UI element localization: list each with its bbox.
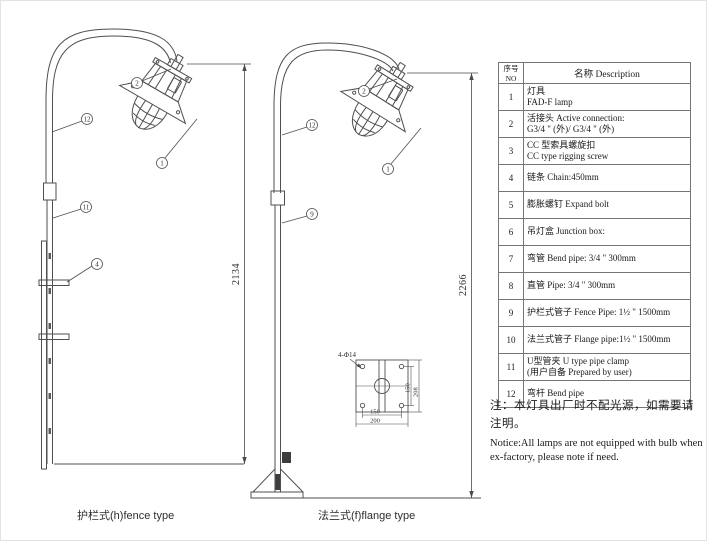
part-number: 5 [499, 192, 524, 219]
callout-bend-pipe: 12 [309, 122, 317, 130]
drawing-sheet: 2 12 1 11 4 2134 [0, 0, 707, 541]
fence-type-caption: 护栏式(h)fence type [77, 507, 174, 523]
flange-type-drawing [251, 43, 481, 498]
table-row: 10 法兰式管子 Flange pipe:1½ " 1500mm [499, 327, 691, 354]
part-desc-line2: CC type rigging screw [527, 151, 687, 162]
table-row: 1 灯具FAD-F lamp [499, 84, 691, 111]
part-desc-line2: G3/4 " (外)/ G3/4 " (外) [527, 124, 687, 135]
part-desc-line1: U型管夹 U type pipe clamp [527, 356, 687, 367]
callout-chain: 4 [95, 261, 99, 269]
part-desc-line1: 灯具 [527, 86, 687, 97]
note-english: Notice:All lamps are not equipped with b… [490, 437, 705, 466]
table-row: 6 吊灯盒 Junction box: [499, 219, 691, 246]
part-number: 1 [499, 84, 524, 111]
callout-bend-pipe: 12 [84, 116, 92, 124]
callout-lamp: 1 [386, 166, 390, 174]
callout-active-connection: 2 [135, 80, 139, 88]
flange-type-caption: 法兰式(f)flange type [318, 507, 415, 523]
hole-callout-label: 4-Φ14 [338, 351, 356, 359]
callout-u-clamp: 11 [83, 204, 90, 212]
part-number: 10 [499, 327, 524, 354]
flange-callouts: 2 12 1 9 [282, 79, 421, 223]
callout-pipe: 9 [310, 211, 314, 219]
notes-block: 注：本灯具出厂时不配光源，如需要请注明。 Notice:All lamps ar… [490, 398, 705, 466]
fence-type-drawing [39, 29, 244, 469]
parts-table: 序号NO 名称 Description 1 灯具FAD-F lamp 2 活接头… [498, 62, 691, 408]
part-desc-line2: FAD-F lamp [527, 97, 687, 108]
part-desc-line1: 吊灯盒 Junction box: [527, 226, 687, 237]
dimension-2266-label: 2266 [458, 274, 469, 296]
part-desc-line1: 直管 Pipe: 3/4 " 300mm [527, 280, 687, 291]
table-row: 3 CC 型索具螺旋扣CC type rigging screw [499, 138, 691, 165]
plate-width-label: 200 [370, 418, 380, 425]
part-number: 6 [499, 219, 524, 246]
flange-base-detail: 4-Φ14 150 208 150 200 [338, 351, 422, 427]
table-row: 5 膨胀螺钉 Expand bolt [499, 192, 691, 219]
bolt-hole [399, 364, 403, 368]
table-header-row: 序号NO 名称 Description [499, 63, 691, 84]
table-row: 2 活接头 Active connection:G3/4 " (外)/ G3/4… [499, 111, 691, 138]
part-desc-line1: 膨胀螺钉 Expand bolt [527, 199, 687, 210]
lamp-icon [106, 37, 213, 147]
dimension-2134-label: 2134 [231, 263, 242, 285]
dimension-2266: 2266 [407, 73, 478, 498]
part-number: 2 [499, 111, 524, 138]
note-chinese: 注：本灯具出厂时不配光源，如需要请注明。 [490, 398, 705, 434]
callout-lamp: 1 [160, 160, 164, 168]
dimension-2134: 2134 [187, 64, 251, 464]
part-number: 8 [499, 273, 524, 300]
table-row: 9 护栏式管子 Fence Pipe: 1½ " 1500mm [499, 300, 691, 327]
part-number: 4 [499, 165, 524, 192]
junction-box [282, 452, 291, 463]
plate-height-label: 208 [413, 387, 420, 397]
bolt-hole [360, 403, 364, 407]
part-desc-line1: 弯管 Bend pipe: 3/4 " 300mm [527, 253, 687, 264]
part-desc-line1: 护栏式管子 Fence Pipe: 1½ " 1500mm [527, 307, 687, 318]
column-header-description: 名称 Description [524, 63, 691, 84]
callout-active-connection: 2 [362, 88, 366, 96]
table-row: 8 直管 Pipe: 3/4 " 300mm [499, 273, 691, 300]
table-row: 4 链条 Chain:450mm [499, 165, 691, 192]
part-desc-line1: 法兰式管子 Flange pipe:1½ " 1500mm [527, 334, 687, 345]
column-header-no: 序号NO [499, 63, 524, 84]
part-desc-line2: (用户自备 Prepared by user) [527, 367, 687, 378]
hole-spacing-v-label: 150 [405, 383, 412, 393]
hole-spacing-h-label: 150 [370, 409, 380, 416]
part-number: 7 [499, 246, 524, 273]
table-row: 11 U型管夹 U type pipe clamp(用户自备 Prepared … [499, 354, 691, 381]
table-row: 7 弯管 Bend pipe: 3/4 " 300mm [499, 246, 691, 273]
part-number: 3 [499, 138, 524, 165]
fence-callouts: 2 12 1 11 4 [52, 69, 197, 282]
part-number: 9 [499, 300, 524, 327]
part-desc-line1: 链条 Chain:450mm [527, 172, 687, 183]
bolt-hole [399, 403, 403, 407]
part-number: 11 [499, 354, 524, 381]
part-desc-line1: 活接头 Active connection: [527, 113, 687, 124]
part-desc-line1: CC 型索具螺旋扣 [527, 140, 687, 151]
